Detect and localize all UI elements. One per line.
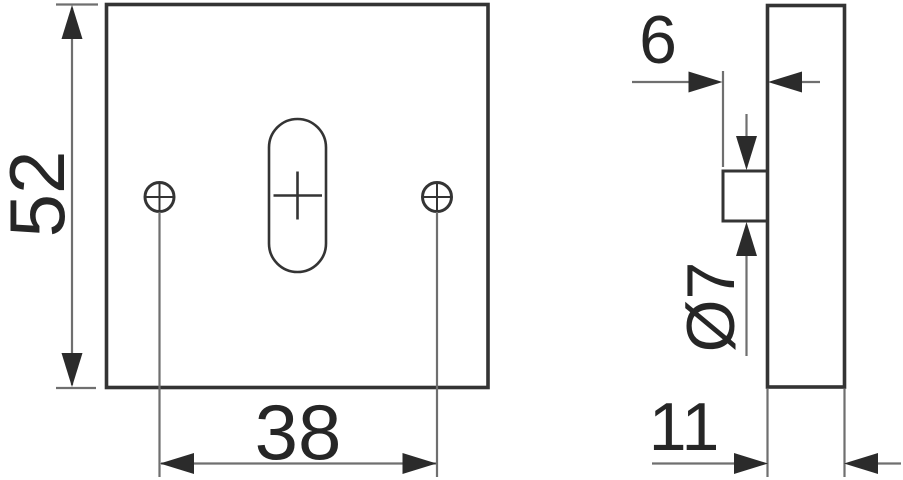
- arrowhead-right-icon: [403, 453, 437, 474]
- arrowhead-down-icon: [736, 136, 757, 170]
- screw-hole-right: [423, 183, 452, 212]
- dimension-label-6: 6: [639, 2, 677, 78]
- arrowhead-up-icon: [736, 222, 757, 256]
- dimension-pin-diameter: Ø7: [673, 114, 757, 356]
- dimension-label-52: 52: [0, 151, 81, 238]
- dimension-hole-spacing: 38: [160, 212, 438, 477]
- dimension-label-38: 38: [255, 388, 342, 476]
- arrowhead-down-icon: [62, 353, 83, 387]
- pin-outline: [723, 171, 768, 221]
- arrowhead-right-icon: [734, 453, 768, 474]
- drawing-canvas: 52 38 6 Ø7 11: [0, 0, 903, 480]
- dimension-plate-height: 52: [0, 5, 98, 389]
- screw-hole-left: [145, 183, 174, 212]
- keyhole-slot: [269, 119, 326, 272]
- arrowhead-up-icon: [62, 5, 83, 39]
- arrowhead-right-icon: [689, 72, 723, 93]
- technical-drawing: 52 38 6 Ø7 11: [0, 0, 903, 480]
- dimension-label-d7: Ø7: [673, 262, 749, 353]
- arrowhead-left-icon: [160, 453, 194, 474]
- dimension-plate-thickness: 11: [649, 389, 901, 477]
- arrowhead-left-icon: [844, 453, 878, 474]
- front-view: [107, 5, 489, 388]
- plate-side-outline: [768, 6, 845, 388]
- dimension-label-11: 11: [649, 389, 720, 465]
- dimension-pin-protrusion: 6: [632, 2, 820, 167]
- arrowhead-left-icon: [768, 72, 802, 93]
